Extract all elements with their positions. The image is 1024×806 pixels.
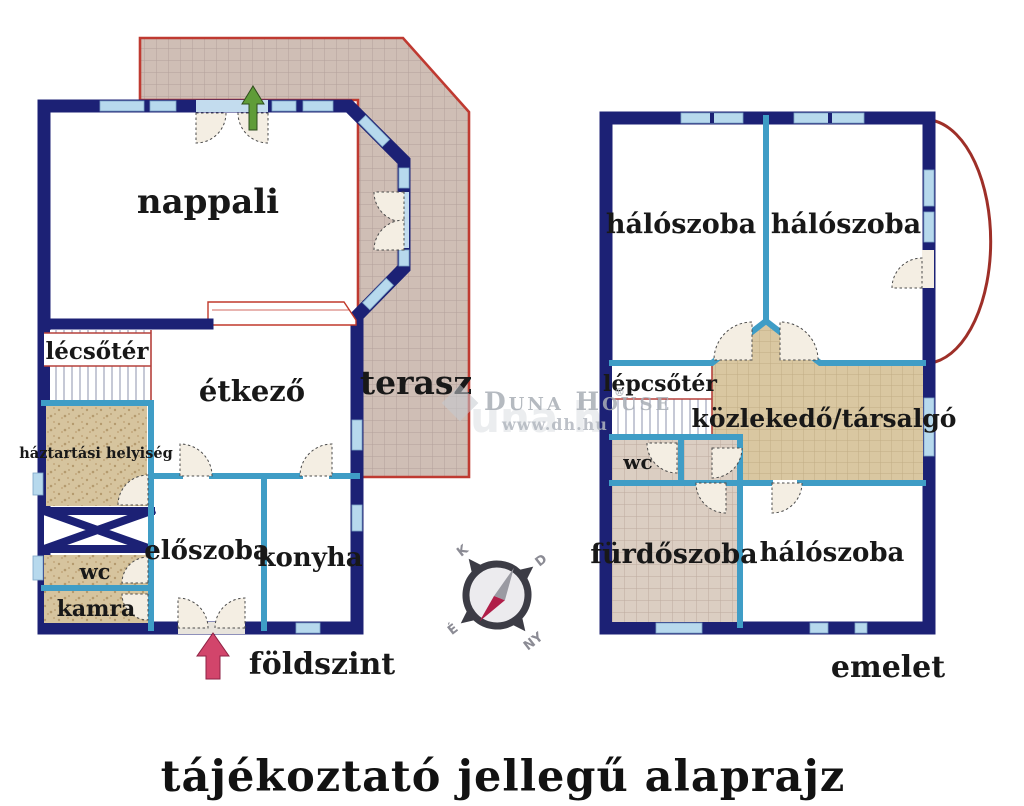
room-label-haloszoba-bottom: hálószoba — [760, 538, 905, 568]
room-label-eloszoba: előszoba — [144, 536, 270, 566]
room-label-wc: wc — [79, 559, 111, 584]
room-label-furdoszoba: fürdőszoba — [590, 539, 757, 570]
page-title: tájékoztató jellegű alaprajz — [161, 752, 846, 802]
floorplan-image: duna house — [0, 0, 1024, 806]
room-label-lecsoter: lécsőtér — [45, 338, 149, 365]
room-label-nappali: nappali — [137, 182, 279, 222]
balcony-arc — [935, 121, 991, 362]
upper-floor-caption: emelet — [831, 650, 945, 685]
ground-floor-caption: földszint — [249, 647, 395, 682]
entrance-arrow — [197, 633, 229, 679]
floorplan-canvas: duna house — [0, 0, 1024, 806]
room-label-etkezo: étkező — [199, 374, 305, 408]
room-label-haloszoba-left: hálószoba — [606, 209, 756, 240]
room-label-haloszoba-right: hálószoba — [771, 209, 921, 240]
void-box — [44, 508, 151, 552]
room-label-kamra: kamra — [57, 596, 136, 622]
terrace-step — [208, 302, 356, 325]
compass-letter-left: É — [444, 620, 461, 638]
room-label-konyha: konyha — [257, 543, 362, 573]
watermark-url: www.dh.hu — [501, 415, 608, 434]
room-label-haztartasi: háztartási helyiség — [19, 445, 172, 462]
room-label-upper-wc: wc — [622, 450, 652, 474]
watermark-brand: Duna House — [484, 387, 672, 416]
compass-letter-bottom: NY — [521, 629, 547, 654]
watermark-reg: ® — [614, 386, 625, 399]
compass: K D NY É — [411, 507, 587, 685]
compass-letter-right: D — [533, 552, 551, 571]
room-label-kozlekedo: közlekedő/társalgó — [692, 404, 957, 433]
ground-floor-plan: nappali lécsőtér étkező terasz háztartás… — [19, 38, 472, 682]
compass-letter-top: K — [454, 542, 472, 561]
